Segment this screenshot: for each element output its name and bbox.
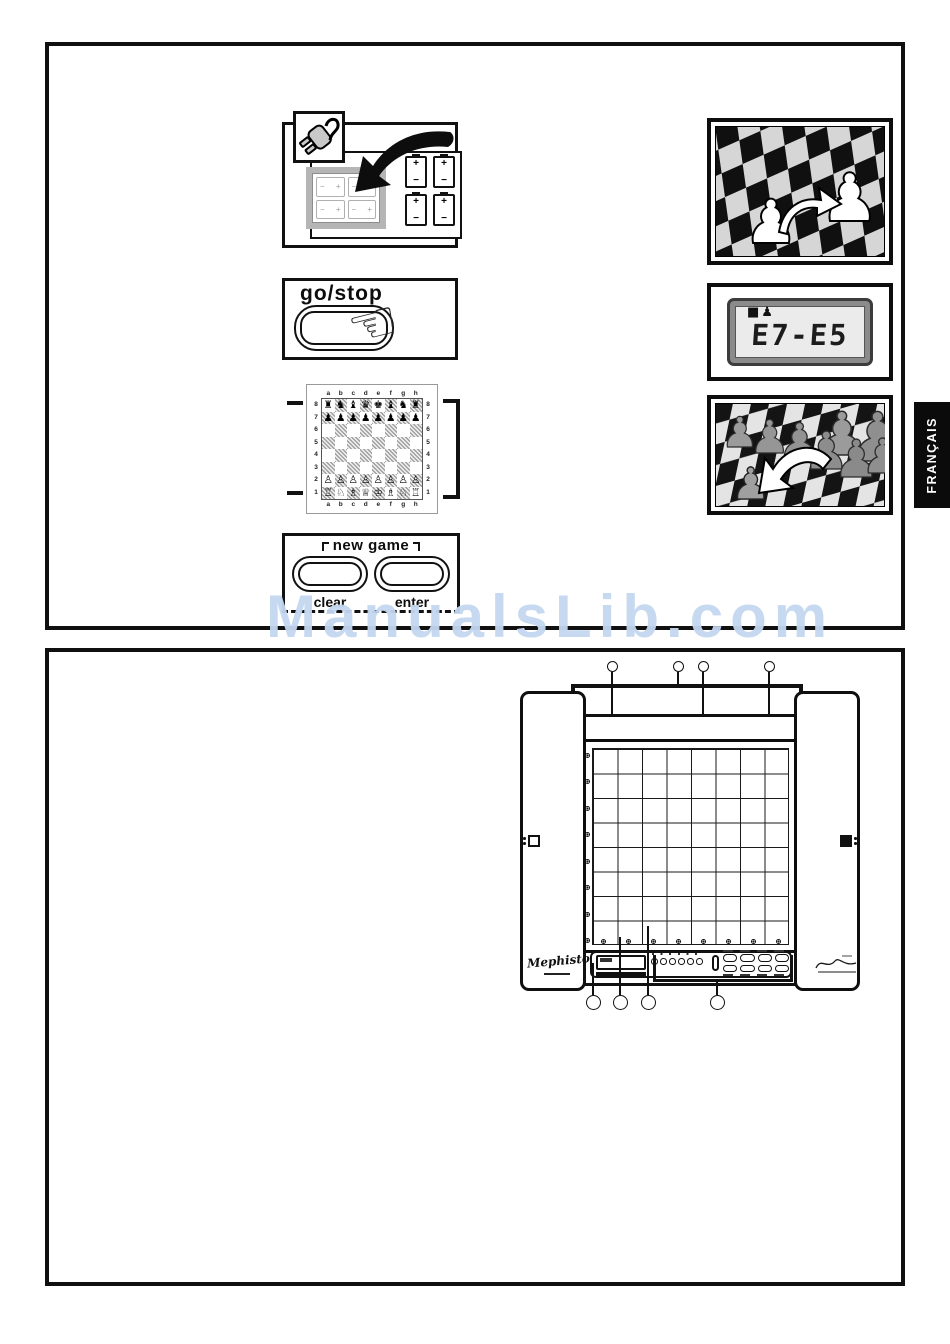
board-square bbox=[410, 424, 423, 437]
board-sensors-bottom bbox=[601, 939, 781, 945]
pbtn bbox=[758, 954, 772, 962]
board-square bbox=[360, 462, 373, 475]
board-square bbox=[322, 462, 335, 475]
leader-line bbox=[647, 926, 649, 995]
corner-tick-right bbox=[413, 542, 420, 551]
rank-labels-right: 87654321 bbox=[422, 399, 434, 499]
sdot bbox=[701, 939, 706, 944]
figure-capture-move: ♟ ♟ ♟ ♟ ♟ ♟ ♟ ♟ ♟ bbox=[707, 395, 893, 515]
board-square: ♟ bbox=[397, 412, 410, 425]
board-square: ♞ bbox=[335, 399, 348, 412]
pbtn bbox=[775, 965, 789, 973]
board-square bbox=[397, 449, 410, 462]
board-square bbox=[385, 437, 398, 450]
board-square bbox=[347, 449, 360, 462]
leader-line bbox=[592, 963, 594, 995]
sdot bbox=[585, 753, 590, 758]
board-square: ♟ bbox=[360, 412, 373, 425]
board-square bbox=[385, 462, 398, 475]
board-square: ♟ bbox=[372, 412, 385, 425]
board-square: ♛ bbox=[360, 399, 373, 412]
board-square bbox=[410, 462, 423, 475]
callout-circle-bottom-3 bbox=[641, 995, 656, 1010]
housing-bottom-edge bbox=[583, 983, 797, 986]
power-plug-icon bbox=[296, 114, 342, 160]
board-square: ♙ bbox=[372, 474, 385, 487]
board-square: ♟ bbox=[322, 412, 335, 425]
leader-line bbox=[702, 672, 704, 716]
sdot bbox=[585, 912, 590, 917]
pbtn bbox=[723, 965, 737, 973]
sdot bbox=[585, 806, 590, 811]
led bbox=[660, 958, 667, 965]
lcd-move-readout: E7-E5 bbox=[736, 318, 864, 352]
board-square: ♙ bbox=[410, 474, 423, 487]
board-square: ♘ bbox=[397, 487, 410, 500]
leader-line bbox=[619, 937, 621, 995]
board-square: ♙ bbox=[335, 474, 348, 487]
panel-buttons bbox=[723, 954, 789, 972]
callout-circle-top-2 bbox=[673, 661, 684, 672]
manualslib-watermark: ManualsLib.com bbox=[266, 582, 834, 651]
bracket-leg-right bbox=[790, 955, 793, 982]
leader-line bbox=[768, 672, 770, 716]
figure-pawn-move: ♟ ♟ ♟ ♟ bbox=[707, 118, 893, 265]
board-square bbox=[372, 424, 385, 437]
board-square bbox=[372, 437, 385, 450]
board-square: ♘ bbox=[335, 487, 348, 500]
board-square bbox=[360, 424, 373, 437]
board-sensors-left bbox=[585, 753, 591, 943]
board-square: ♝ bbox=[347, 399, 360, 412]
housing-side-right bbox=[794, 950, 797, 986]
board-square bbox=[372, 449, 385, 462]
pbtn bbox=[740, 965, 754, 973]
white-square-icon bbox=[528, 835, 540, 847]
board-square: ♝ bbox=[385, 399, 398, 412]
panel-leds bbox=[651, 958, 703, 965]
led bbox=[687, 958, 694, 965]
led bbox=[696, 958, 703, 965]
board-square: ♜ bbox=[410, 399, 423, 412]
board-square bbox=[410, 437, 423, 450]
board-square bbox=[322, 424, 335, 437]
bracket-right bbox=[443, 399, 460, 499]
board-square: ♙ bbox=[385, 474, 398, 487]
diagram-squares: ♜♞♝♛♚♝♞♜♟♟♟♟♟♟♟♟♙♙♙♙♙♙♙♙♖♘♗♕♔♗♘♖ bbox=[321, 398, 423, 500]
led-labels bbox=[652, 953, 702, 955]
insert-arrow-icon bbox=[338, 126, 458, 215]
sdot bbox=[776, 939, 781, 944]
board-square bbox=[385, 449, 398, 462]
bracket-left-bottom bbox=[287, 491, 303, 495]
corner-tick-left bbox=[322, 542, 329, 551]
board-square bbox=[360, 437, 373, 450]
sdot bbox=[676, 939, 681, 944]
led bbox=[669, 958, 676, 965]
board-square: ♙ bbox=[360, 474, 373, 487]
board-square: ♕ bbox=[360, 487, 373, 500]
bracket-leg-left bbox=[653, 955, 656, 982]
pbtn bbox=[723, 954, 737, 962]
board-square bbox=[397, 437, 410, 450]
board-square: ♜ bbox=[322, 399, 335, 412]
black-square-icon-panel bbox=[840, 835, 852, 847]
mephisto-logo-underline bbox=[544, 973, 570, 975]
board-square bbox=[360, 449, 373, 462]
board-square bbox=[347, 462, 360, 475]
black-side-indicator bbox=[840, 835, 857, 847]
board-square bbox=[347, 424, 360, 437]
sdot bbox=[626, 939, 631, 944]
bracket-left-top bbox=[287, 401, 303, 405]
board-square bbox=[397, 424, 410, 437]
panel-pill-button bbox=[712, 955, 719, 971]
callout-circle-top-4 bbox=[764, 661, 775, 672]
board-square: ♞ bbox=[397, 399, 410, 412]
figure-board-setup: abcdefgh 87654321 ♜♞♝♛♚♝♞♜♟♟♟♟♟♟♟♟♙♙♙♙♙♙… bbox=[306, 384, 438, 514]
board-square: ♙ bbox=[397, 474, 410, 487]
new-game-title: new game bbox=[290, 537, 452, 554]
sdot bbox=[585, 859, 590, 864]
sensor-board-grid bbox=[592, 748, 789, 945]
device-top-bar bbox=[571, 684, 803, 688]
board-square: ♖ bbox=[322, 487, 335, 500]
leader-line bbox=[716, 982, 718, 995]
board-square bbox=[322, 449, 335, 462]
leader-line bbox=[611, 672, 613, 716]
pbtn bbox=[740, 954, 754, 962]
board-square bbox=[322, 437, 335, 450]
white-side-indicator bbox=[523, 835, 540, 847]
callout-circle-bottom-2 bbox=[613, 995, 628, 1010]
sdot bbox=[651, 939, 656, 944]
language-tab-francais: FRANÇAIS bbox=[914, 402, 950, 508]
board-square: ♔ bbox=[372, 487, 385, 500]
control-panel-lcd-mark bbox=[600, 958, 612, 962]
callout-circle-bottom-1 bbox=[586, 995, 601, 1010]
board-square bbox=[335, 437, 348, 450]
sdot bbox=[585, 938, 590, 943]
pbtn bbox=[775, 954, 789, 962]
svg-text:♟: ♟ bbox=[861, 429, 885, 485]
file-labels-bottom: abcdefgh bbox=[322, 499, 422, 510]
button-labels-bottom bbox=[723, 974, 789, 976]
board-square: ♙ bbox=[347, 474, 360, 487]
bracket-bar bbox=[653, 979, 793, 982]
board-square bbox=[335, 449, 348, 462]
sdot bbox=[601, 939, 606, 944]
board-square: ♗ bbox=[385, 487, 398, 500]
pbtn bbox=[758, 965, 772, 973]
sdot bbox=[726, 939, 731, 944]
control-panel-label-strip bbox=[596, 972, 646, 976]
indicator-dots bbox=[523, 837, 526, 845]
board-square bbox=[410, 449, 423, 462]
board-square bbox=[347, 437, 360, 450]
indicator-dots bbox=[854, 837, 857, 845]
board-square: ♟ bbox=[347, 412, 360, 425]
board-square: ♙ bbox=[322, 474, 335, 487]
board-square bbox=[335, 462, 348, 475]
callout-circle-bottom-4 bbox=[710, 995, 725, 1010]
button-labels-top bbox=[723, 950, 789, 952]
callout-circle-top-1 bbox=[607, 661, 618, 672]
language-tab-label: FRANÇAIS bbox=[925, 417, 939, 494]
board-square: ♗ bbox=[347, 487, 360, 500]
board-square: ♟ bbox=[385, 412, 398, 425]
callout-circle-top-3 bbox=[698, 661, 709, 672]
sdot bbox=[585, 885, 590, 890]
board-square bbox=[372, 462, 385, 475]
board-square bbox=[335, 424, 348, 437]
signature-graphic bbox=[812, 952, 860, 978]
board-square: ♚ bbox=[372, 399, 385, 412]
board-square: ♟ bbox=[410, 412, 423, 425]
board-square bbox=[397, 462, 410, 475]
sdot bbox=[585, 779, 590, 784]
board-top-edge bbox=[585, 714, 797, 717]
board-square: ♟ bbox=[335, 412, 348, 425]
board-square bbox=[385, 424, 398, 437]
sdot bbox=[585, 832, 590, 837]
led bbox=[678, 958, 685, 965]
sdot bbox=[751, 939, 756, 944]
board-square: ♖ bbox=[410, 487, 423, 500]
